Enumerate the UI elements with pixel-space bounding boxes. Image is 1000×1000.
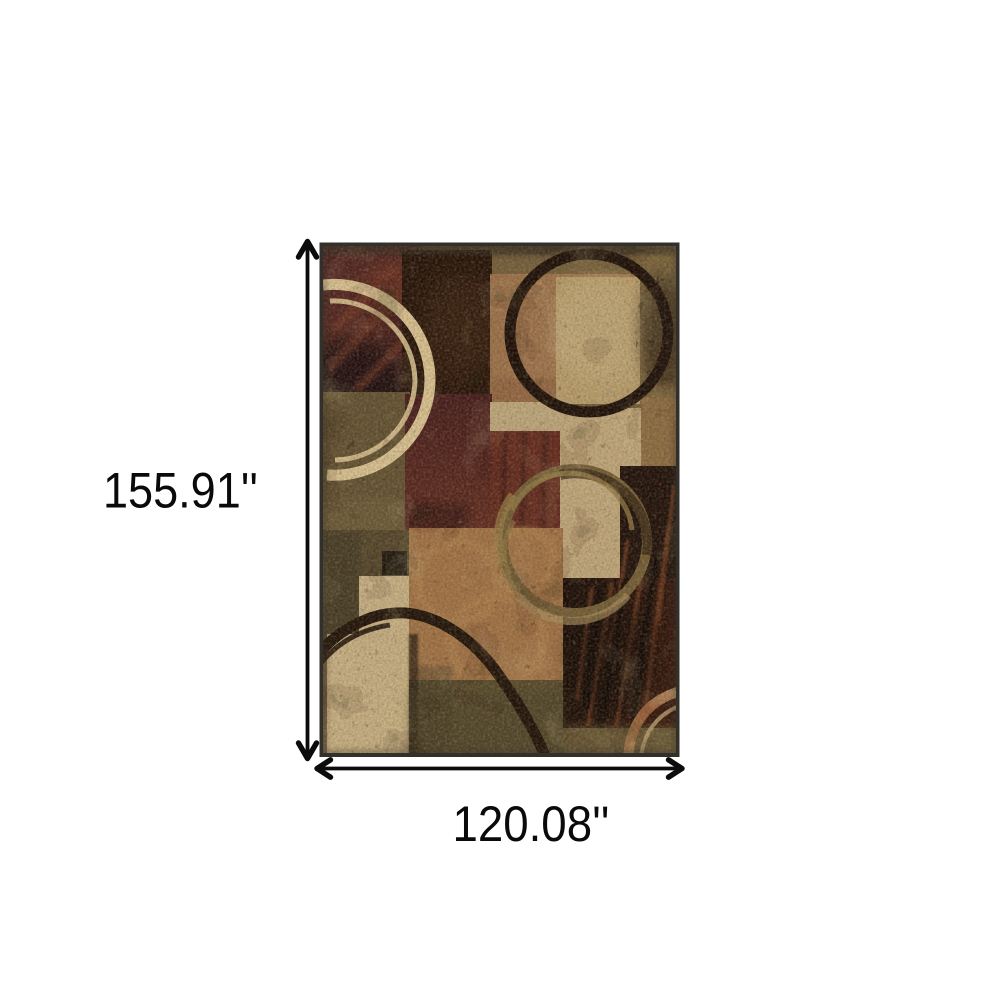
svg-text:155.91'': 155.91'' [103,463,258,519]
svg-text:120.08'': 120.08'' [453,796,610,852]
